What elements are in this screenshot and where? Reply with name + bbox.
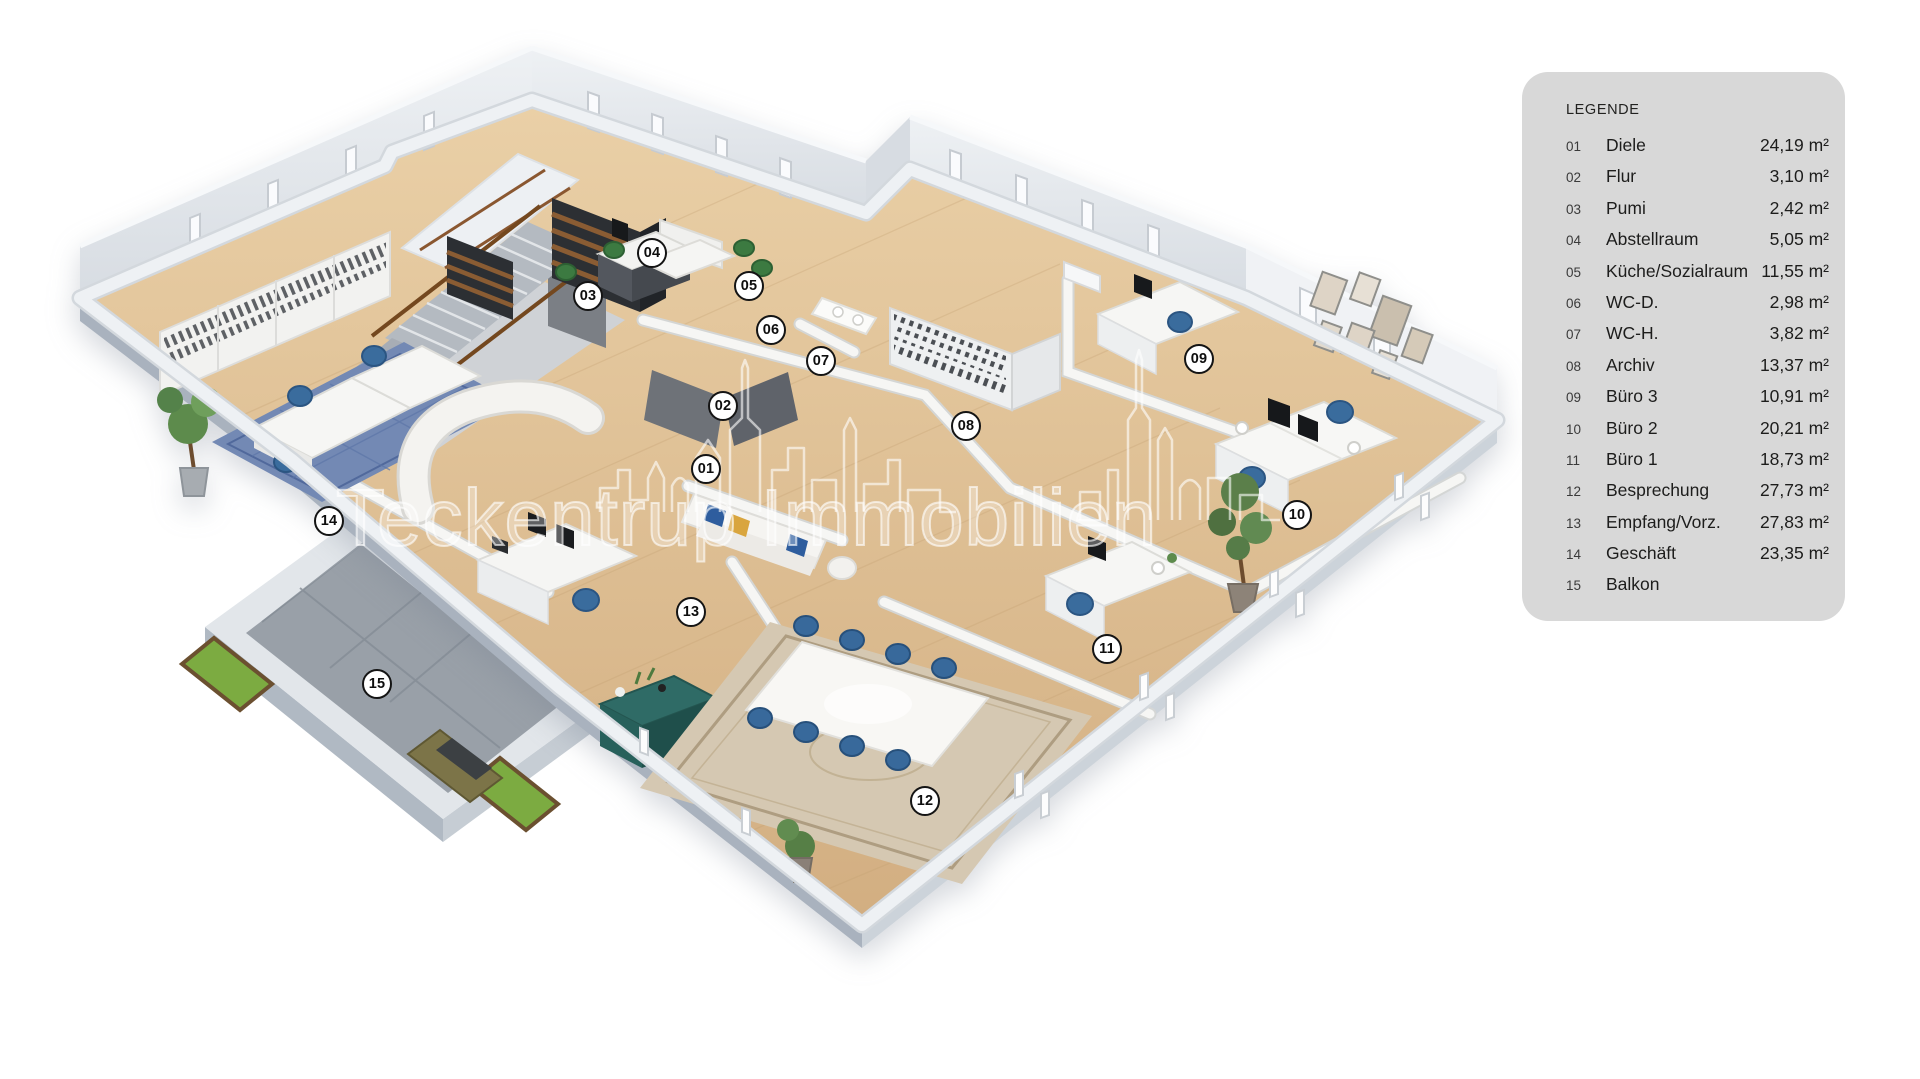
- legend-row-15: 15 Balkon: [1566, 574, 1829, 605]
- legend-row-05: 05 Küche/Sozialraum 11,55 m²: [1566, 261, 1829, 292]
- legend-row-number: 12: [1566, 484, 1606, 499]
- legend-title: LEGENDE: [1566, 102, 1829, 118]
- room-marker-03: 03: [573, 281, 603, 311]
- legend-row-area: 2,98 m²: [1770, 292, 1829, 313]
- desk-lamp: [1236, 422, 1248, 434]
- legend-row-01: 01 Diele 24,19 m²: [1566, 135, 1829, 166]
- legend-row-09: 09 Büro 3 10,91 m²: [1566, 386, 1829, 417]
- legend-row-11: 11 Büro 1 18,73 m²: [1566, 449, 1829, 480]
- legend-row-10: 10 Büro 2 20,21 m²: [1566, 418, 1829, 449]
- room-marker-07: 07: [806, 346, 836, 376]
- room-marker-09: 09: [1184, 344, 1214, 374]
- legend-row-number: 14: [1566, 547, 1606, 562]
- armchair: [828, 557, 856, 579]
- legend-row-area: 27,73 m²: [1760, 480, 1829, 501]
- legend-row-name: WC-H.: [1606, 323, 1770, 344]
- legend-row-14: 14 Geschäft 23,35 m²: [1566, 543, 1829, 574]
- room-marker-08: 08: [951, 411, 981, 441]
- room-marker-06: 06: [756, 315, 786, 345]
- legend-row-area: 24,19 m²: [1760, 135, 1829, 156]
- legend-row-area: 20,21 m²: [1760, 418, 1829, 439]
- legend-row-name: WC-D.: [1606, 292, 1770, 313]
- legend-row-name: Geschäft: [1606, 543, 1760, 564]
- legend-row-area: 3,10 m²: [1770, 166, 1829, 187]
- legend-row-name: Büro 2: [1606, 418, 1760, 439]
- room-marker-04: 04: [637, 238, 667, 268]
- legend-row-name: Empfang/Vorz.: [1606, 512, 1760, 533]
- room-marker-13: 13: [676, 597, 706, 627]
- legend-row-name: Besprechung: [1606, 480, 1760, 501]
- legend-row-name: Abstellraum: [1606, 229, 1770, 250]
- legend-row-04: 04 Abstellraum 5,05 m²: [1566, 229, 1829, 260]
- legend-row-number: 07: [1566, 327, 1606, 342]
- legend-row-name: Flur: [1606, 166, 1770, 187]
- legend-row-number: 15: [1566, 578, 1606, 593]
- legend-row-name: Büro 3: [1606, 386, 1760, 407]
- legend-row-number: 01: [1566, 139, 1606, 154]
- room-marker-10: 10: [1282, 500, 1312, 530]
- legend-row-number: 03: [1566, 202, 1606, 217]
- room-marker-15: 15: [362, 669, 392, 699]
- legend-row-name: Archiv: [1606, 355, 1760, 376]
- legend-row-name: Büro 1: [1606, 449, 1760, 470]
- legend-row-13: 13 Empfang/Vorz. 27,83 m²: [1566, 512, 1829, 543]
- room-marker-11: 11: [1092, 634, 1122, 664]
- legend-row-area: 23,35 m²: [1760, 543, 1829, 564]
- legend-row-name: Diele: [1606, 135, 1760, 156]
- legend-row-07: 07 WC-H. 3,82 m²: [1566, 323, 1829, 354]
- legend-row-number: 05: [1566, 265, 1606, 280]
- room-marker-05: 05: [734, 271, 764, 301]
- room-marker-01: 01: [691, 454, 721, 484]
- legend-row-area: 10,91 m²: [1760, 386, 1829, 407]
- legend-row-02: 02 Flur 3,10 m²: [1566, 166, 1829, 197]
- legend-row-06: 06 WC-D. 2,98 m²: [1566, 292, 1829, 323]
- legend-row-number: 11: [1566, 453, 1606, 468]
- legend-row-name: Balkon: [1606, 574, 1829, 595]
- room-marker-12: 12: [910, 786, 940, 816]
- legend-row-name: Pumi: [1606, 198, 1770, 219]
- legend-row-area: 13,37 m²: [1760, 355, 1829, 376]
- legend-row-12: 12 Besprechung 27,73 m²: [1566, 480, 1829, 511]
- legend-row-area: 2,42 m²: [1770, 198, 1829, 219]
- legend-row-03: 03 Pumi 2,42 m²: [1566, 198, 1829, 229]
- legend-panel: LEGENDE 01 Diele 24,19 m² 02 Flur 3,10 m…: [1522, 72, 1845, 621]
- legend-row-number: 13: [1566, 516, 1606, 531]
- legend-row-area: 5,05 m²: [1770, 229, 1829, 250]
- legend-row-area: 18,73 m²: [1760, 449, 1829, 470]
- legend-row-area: 27,83 m²: [1760, 512, 1829, 533]
- room-marker-14: 14: [314, 506, 344, 536]
- legend-row-number: 06: [1566, 296, 1606, 311]
- legend-row-number: 04: [1566, 233, 1606, 248]
- legend-row-area: 11,55 m²: [1761, 261, 1829, 282]
- room-marker-02: 02: [708, 391, 738, 421]
- legend-row-08: 08 Archiv 13,37 m²: [1566, 355, 1829, 386]
- legend-row-name: Küche/Sozialraum: [1606, 261, 1761, 282]
- building: [0, 48, 1560, 1079]
- legend-row-number: 02: [1566, 170, 1606, 185]
- floorplan-canvas: Teckentrup Immobilien 010203040506070809…: [0, 0, 1920, 1079]
- legend-row-number: 08: [1566, 359, 1606, 374]
- legend-rows: 01 Diele 24,19 m² 02 Flur 3,10 m² 03 Pum…: [1566, 135, 1829, 606]
- legend-row-number: 09: [1566, 390, 1606, 405]
- legend-row-area: 3,82 m²: [1770, 323, 1829, 344]
- legend-row-number: 10: [1566, 422, 1606, 437]
